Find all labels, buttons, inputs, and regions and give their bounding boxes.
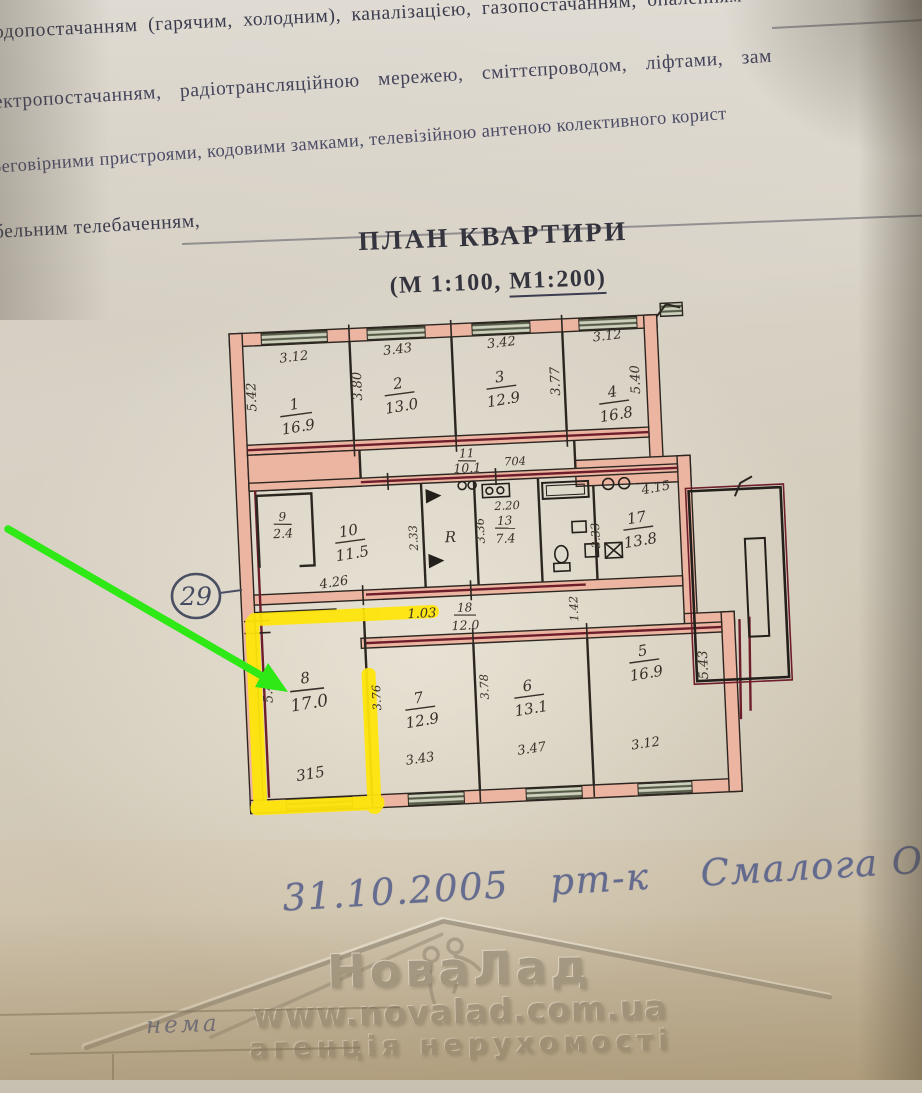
- form-table-rule: [112, 1054, 114, 1080]
- door-swing-icon: [429, 555, 443, 568]
- agency-watermark: НоваЛад www.novalad.com.ua агенція нерух…: [58, 902, 861, 1089]
- svg-text:16.9: 16.9: [628, 662, 664, 685]
- door-swing-icon: [426, 490, 440, 503]
- sink-icon: [572, 521, 586, 533]
- room-7-label: 7 12.9: [401, 686, 441, 732]
- apartment-number-mark: 29: [172, 574, 242, 618]
- corridor-11-width: 704: [504, 454, 527, 469]
- svg-text:11.5: 11.5: [334, 542, 370, 565]
- svg-text:10: 10: [338, 520, 360, 541]
- svg-text:7.4: 7.4: [495, 530, 516, 546]
- svg-text:4: 4: [605, 382, 618, 402]
- room-7-width: 3.43: [405, 750, 436, 769]
- svg-text:6: 6: [521, 676, 534, 695]
- svg-text:12.0: 12.0: [451, 617, 480, 633]
- svg-text:13: 13: [497, 513, 513, 528]
- svg-text:9: 9: [278, 510, 287, 524]
- svg-text:8: 8: [299, 668, 311, 687]
- svg-text:7: 7: [412, 688, 425, 707]
- room-4-depth: 5.40: [628, 365, 644, 395]
- room-6-width: 3.47: [516, 740, 548, 759]
- svg-text:3: 3: [493, 367, 505, 386]
- svg-text:2.4: 2.4: [272, 525, 294, 541]
- svg-text:13.1: 13.1: [513, 697, 549, 720]
- room-1-depth: 5.42: [244, 382, 260, 412]
- svg-text:10.1: 10.1: [453, 460, 481, 476]
- handwritten-abbrev: рт-к: [549, 855, 651, 904]
- room-7-depth: 3.76: [369, 685, 384, 711]
- svg-text:11: 11: [459, 446, 475, 461]
- room-6-depth: 3.78: [477, 674, 492, 700]
- room-2-depth: 3.80: [350, 371, 366, 401]
- room-13-label: 2.20 13 7.4 3.36: [472, 498, 522, 547]
- room-6-label: 6 13.1: [509, 674, 549, 720]
- svg-text:13.8: 13.8: [622, 529, 658, 552]
- svg-text:16.9: 16.9: [280, 415, 316, 438]
- svg-text:17: 17: [626, 507, 648, 528]
- room-1-label: 1 16.9: [276, 392, 316, 438]
- room-13-depth: 3.36: [473, 518, 488, 544]
- room-9-label: 9 2.4: [271, 509, 293, 541]
- svg-text:16.8: 16.8: [598, 403, 634, 426]
- room-17-depth: 3.33: [588, 522, 603, 548]
- toilet-icon: [554, 545, 568, 563]
- dimension-ticks: [231, 314, 595, 812]
- room-2-width: 3.43: [382, 341, 412, 359]
- room-5-width: 3.12: [630, 734, 661, 753]
- svg-text:17.0: 17.0: [289, 691, 330, 717]
- svg-text:13.0: 13.0: [384, 394, 420, 417]
- room-8-label: 8 17.0: [285, 666, 330, 717]
- svg-text:18: 18: [457, 600, 473, 615]
- svg-text:29: 29: [179, 582, 212, 611]
- room-4-width: 3.12: [592, 327, 622, 345]
- room-3-width: 3.42: [486, 334, 516, 352]
- svg-text:1.03: 1.03: [407, 606, 437, 622]
- handwritten-form-value: нема: [146, 1011, 220, 1040]
- svg-text:12.9: 12.9: [404, 709, 440, 732]
- room-10-width: 4.26: [318, 573, 350, 592]
- room-5-label: 5 16.9: [625, 639, 665, 685]
- fixtures: [426, 474, 634, 577]
- room-3-depth: 3.77: [548, 366, 564, 396]
- outer-walls: [229, 301, 743, 814]
- corridor-18-depth: 1.42: [566, 596, 581, 622]
- svg-text:12.9: 12.9: [486, 388, 522, 411]
- room-3-label: 3 12.9: [482, 365, 522, 411]
- room-17-label: 17 13.8: [619, 506, 659, 552]
- room-10-depth: 2.33: [406, 525, 421, 552]
- svg-text:2.20: 2.20: [493, 498, 520, 513]
- room-10-label: 10 11.5: [330, 519, 370, 565]
- svg-text:5: 5: [636, 641, 648, 660]
- gas-meter-icon: [458, 481, 466, 489]
- room-5-depth: 5.43: [696, 650, 712, 680]
- riser-label: R: [443, 528, 456, 547]
- svg-text:1: 1: [288, 395, 300, 414]
- room-1-width: 3.12: [279, 348, 309, 366]
- room-2-label: 2 13.0: [380, 372, 420, 418]
- room-8-width: 315: [295, 763, 326, 786]
- svg-text:2: 2: [391, 374, 404, 394]
- floor-plan: 1 16.9 3.12 5.42 2 13.0 3.43 3.80 3 12.9…: [229, 298, 798, 819]
